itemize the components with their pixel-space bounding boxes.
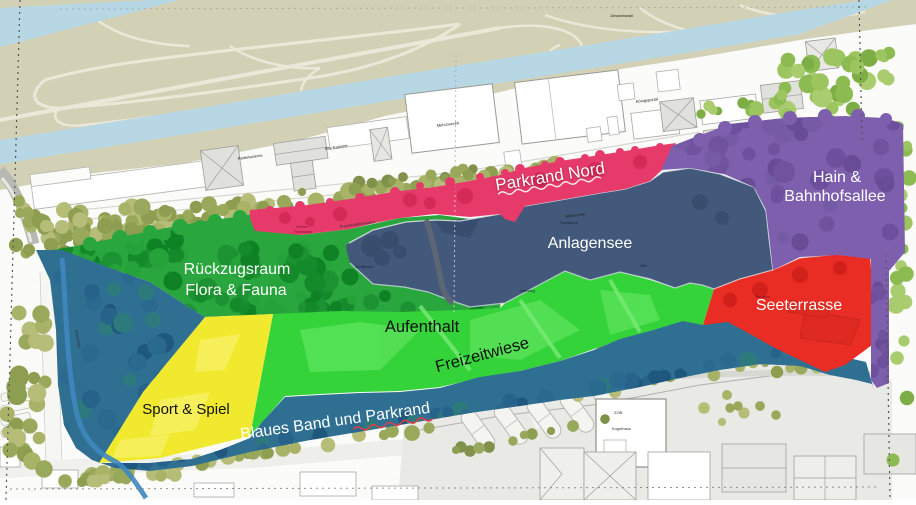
svg-text:Uferweg: Uferweg — [520, 288, 535, 293]
svg-text:Flora & Fauna: Flora & Fauna — [185, 282, 286, 299]
svg-text:Johanniswall: Johanniswall — [610, 13, 633, 18]
svg-text:Hain &: Hain & — [813, 169, 861, 186]
svg-text:Aufenthalt: Aufenthalt — [385, 318, 460, 336]
svg-text:Anlagensee: Anlagensee — [548, 235, 633, 252]
svg-text:Seeterrasse: Seeterrasse — [756, 297, 842, 314]
svg-text:Seefläche: Seefläche — [560, 220, 579, 225]
svg-text:Terrasse: Terrasse — [755, 294, 771, 299]
svg-text:Parkwiese: Parkwiese — [294, 229, 313, 234]
svg-text:Bahnhofsallee: Bahnhofsallee — [784, 188, 886, 205]
svg-text:ZOB: ZOB — [614, 410, 623, 415]
svg-text:Rückzugsraum: Rückzugsraum — [184, 261, 291, 278]
svg-text:Kugelhaus: Kugelhaus — [612, 426, 631, 431]
svg-text:Sport & Spiel: Sport & Spiel — [142, 401, 230, 418]
svg-text:Ufer: Ufer — [640, 263, 648, 268]
svg-text:Schilfzone: Schilfzone — [355, 264, 374, 269]
